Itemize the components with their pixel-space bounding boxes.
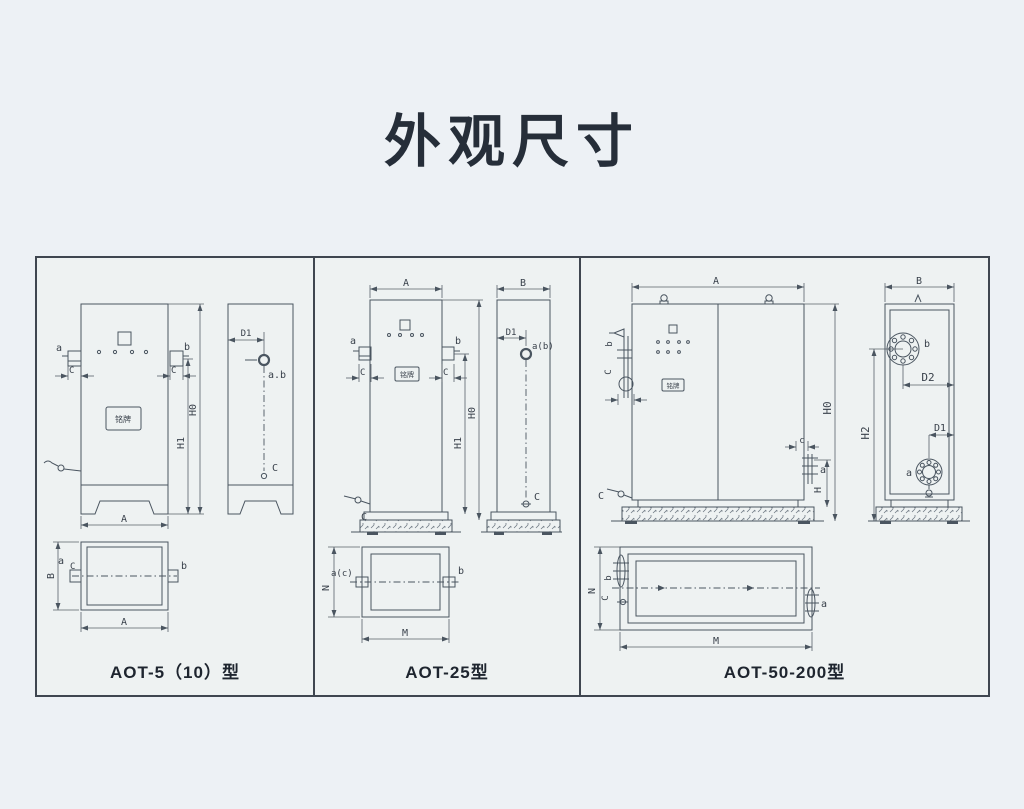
dim-label-ab: a(b) (532, 342, 554, 352)
dim-label-a-width: A (121, 514, 127, 525)
nameplate: 铭牌 (395, 367, 419, 381)
panel-aot-50-200: A 铭牌 (581, 258, 988, 695)
dim-label-d1: D1 (506, 328, 517, 338)
aot-50-200-drawing: A 铭牌 (581, 258, 988, 695)
dim-label-h0: H0 (188, 404, 199, 416)
dim-label-c: C (272, 463, 278, 474)
drain-port (261, 473, 266, 478)
left-flange-fitting (613, 555, 629, 605)
side-view: B b D2 (859, 276, 970, 524)
dim-label-c: C (601, 595, 611, 600)
side-view: D1 a.b C (228, 304, 293, 514)
drain-valve (344, 496, 370, 504)
inlet-fitting-a (62, 351, 81, 366)
dim-label-h0: H0 (467, 407, 478, 419)
dim-label-b-depth: B (46, 573, 57, 579)
dim-label-a-width: A (713, 276, 719, 287)
dim-label-m: M (402, 628, 408, 639)
panel-aot-5-10: 铭牌 a C b (37, 258, 315, 695)
dim-label-b: b (605, 341, 615, 346)
dim-label-a-width: A (121, 617, 127, 628)
lifting-lug (660, 295, 668, 304)
drain-valve (44, 461, 81, 471)
outlet-fitting-b (442, 347, 460, 360)
dim-label-b: b (455, 336, 461, 347)
dim-label-m: M (713, 636, 719, 647)
nameplate: 铭牌 (106, 407, 141, 430)
dim-label-b: b (924, 339, 930, 350)
outlet-fitting-b (170, 351, 189, 366)
nameplate: 铭牌 (662, 379, 684, 391)
caption-aot-5-10: AOT-5（10）型 (37, 658, 313, 683)
dim-label-b: b (181, 561, 187, 572)
lug-mark (658, 585, 665, 591)
page: 外观尺寸 铭牌 (0, 0, 1024, 809)
dim-label-ab: a.b (268, 370, 286, 381)
foundation (360, 520, 452, 532)
dimension-drawings-board: 铭牌 a C b (35, 256, 990, 697)
caption-aot-50-200: AOT-50-200型 (581, 658, 988, 683)
dim-label-h2: H2 (859, 426, 872, 439)
lifting-lug (915, 295, 921, 302)
nameplate-label: 铭牌 (115, 414, 131, 424)
dim-label-b: b (604, 575, 614, 580)
top-view: a C b B A (46, 542, 187, 632)
dim-label-a: a (56, 343, 62, 354)
lifting-lug (765, 295, 773, 304)
top-view: b C a N M (587, 547, 827, 651)
front-view: A 铭牌 (598, 276, 839, 524)
dim-label-c-right: C (171, 366, 176, 376)
bottom-valve (925, 485, 933, 497)
dim-label-c-small: c (799, 436, 804, 446)
dim-label-a: a (58, 556, 64, 567)
dim-label-h: H (813, 487, 824, 493)
dim-label-n: N (587, 588, 598, 594)
nameplate-label: 铭牌 (667, 381, 681, 390)
dim-label-c-left: C (69, 366, 74, 376)
dim-label-h1: H1 (176, 437, 187, 449)
dim-label-a: a (821, 599, 827, 610)
safety-valve-fitting (609, 329, 633, 398)
aot-25-drawing: A 铭牌 a C (315, 258, 579, 695)
caption-aot-25: AOT-25型 (315, 658, 579, 683)
foundation (876, 507, 962, 521)
dim-label-a: a (906, 468, 912, 479)
foundation (487, 520, 560, 532)
dim-label-b: b (458, 566, 464, 577)
pipe-port (521, 349, 531, 359)
inlet-fitting-a (353, 347, 371, 360)
dim-label-c-valve: C (598, 491, 604, 502)
lug-mark (747, 585, 754, 591)
aot-5-10-drawing: 铭牌 a C b (37, 258, 313, 695)
front-view: A 铭牌 a C (344, 278, 483, 535)
dim-label-c-right: C (443, 368, 448, 378)
dim-label-c: C (70, 562, 75, 572)
dim-label-b: b (184, 342, 190, 353)
dim-label-d1: D1 (241, 329, 252, 339)
nameplate-label: 铭牌 (400, 370, 414, 379)
dim-label-n: N (321, 585, 332, 591)
dim-label-a-width: A (403, 278, 409, 289)
dim-label-d1: D1 (934, 423, 946, 434)
dim-label-h1: H1 (453, 437, 464, 449)
drain-valve (607, 489, 632, 498)
dim-label-c-left: C (360, 368, 365, 378)
dim-label-b-width: B (520, 278, 526, 289)
dim-label-a: a (350, 336, 356, 347)
dim-label-a: a (820, 465, 826, 476)
dim-label-b-width: B (916, 276, 922, 287)
dim-label-d2: D2 (921, 371, 934, 384)
dim-label-c-left: C (604, 369, 614, 374)
page-title: 外观尺寸 (0, 96, 1024, 178)
front-view: 铭牌 a C b (44, 304, 204, 529)
panel-aot-25: A 铭牌 a C (315, 258, 581, 695)
side-view: B D1 a(b) C (481, 278, 562, 535)
foundation (622, 507, 814, 521)
dim-label-c: C (534, 492, 540, 503)
dim-label-h0: H0 (821, 401, 834, 414)
top-view: a(c) b N M (321, 547, 464, 643)
flange-port-a (916, 459, 942, 485)
pipe-port (259, 355, 269, 365)
